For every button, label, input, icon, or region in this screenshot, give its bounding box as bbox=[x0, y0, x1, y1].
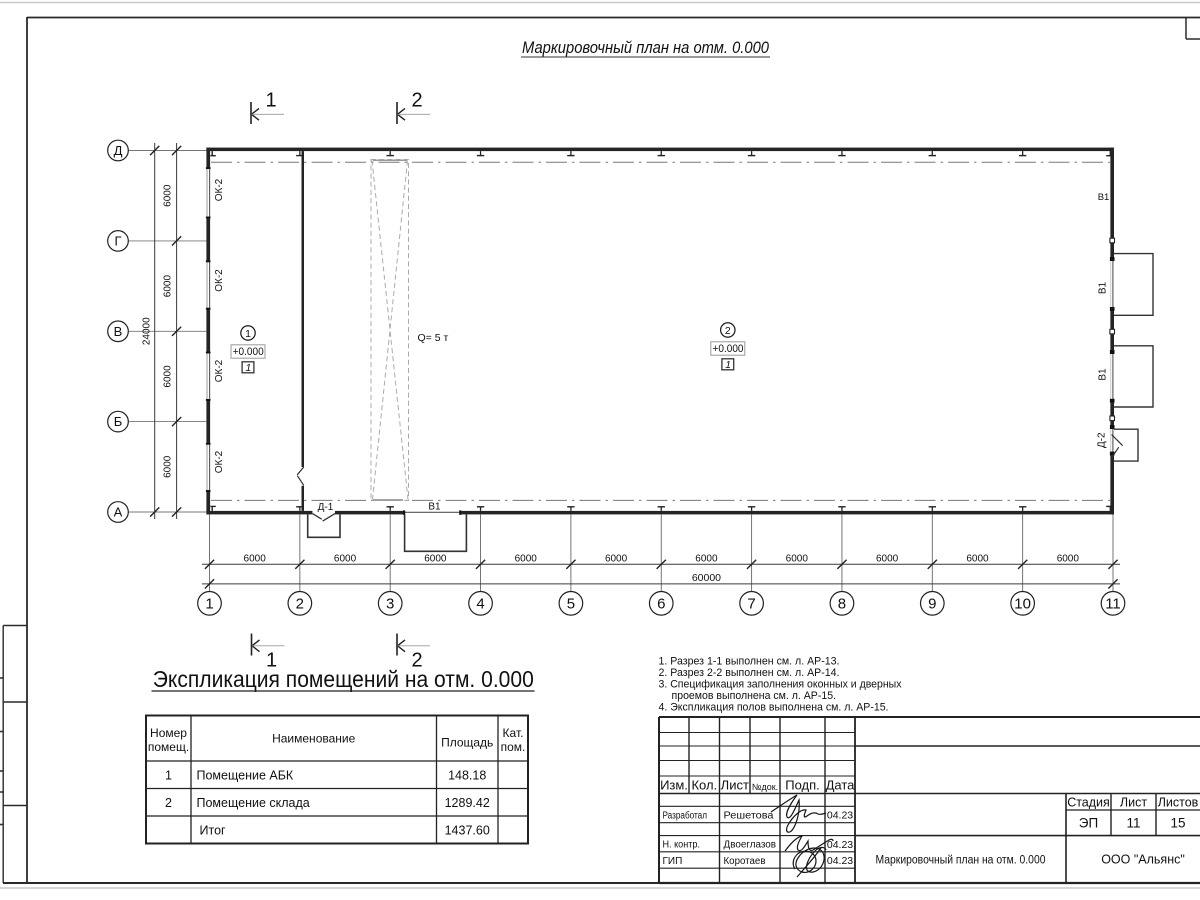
svg-text:Д: Д bbox=[114, 143, 123, 158]
svg-text:04.23: 04.23 bbox=[827, 855, 853, 867]
svg-text:2. Разрез 2-2 выполнен см. л.: 2. Разрез 2-2 выполнен см. л. АР-14. bbox=[659, 667, 840, 679]
svg-text:1: 1 bbox=[205, 596, 213, 613]
svg-text:3. Спецификация заполнения око: 3. Спецификация заполнения оконных и две… bbox=[659, 679, 903, 691]
svg-text:15: 15 bbox=[1170, 816, 1185, 831]
svg-text:6000: 6000 bbox=[244, 553, 267, 564]
svg-text:ОК-2: ОК-2 bbox=[214, 450, 225, 473]
svg-text:ОК-2: ОК-2 bbox=[214, 178, 225, 201]
svg-text:+0.000: +0.000 bbox=[713, 343, 744, 355]
svg-text:1. Разрез 1-1 выполнен см. л.: 1. Разрез 1-1 выполнен см. л. АР-13. bbox=[659, 655, 840, 667]
svg-text:Г: Г bbox=[114, 234, 121, 249]
svg-text:В1: В1 bbox=[1098, 192, 1110, 203]
svg-text:проемов выполнена см. л. АР-15: проемов выполнена см. л. АР-15. bbox=[672, 690, 837, 702]
svg-text:6000: 6000 bbox=[605, 553, 628, 564]
svg-text:ОК-2: ОК-2 bbox=[214, 359, 225, 382]
svg-text:3: 3 bbox=[386, 596, 394, 613]
svg-text:8: 8 bbox=[838, 596, 846, 613]
svg-text:Стадия: Стадия bbox=[1067, 795, 1110, 809]
svg-text:6000: 6000 bbox=[163, 275, 174, 298]
svg-text:6000: 6000 bbox=[163, 184, 174, 207]
svg-text:2: 2 bbox=[411, 90, 422, 112]
svg-text:В1: В1 bbox=[428, 502, 441, 513]
svg-text:Д-2: Д-2 bbox=[1097, 432, 1108, 448]
svg-text:В1: В1 bbox=[1098, 281, 1109, 294]
svg-text:6000: 6000 bbox=[515, 553, 538, 564]
svg-text:№док.: №док. bbox=[752, 782, 778, 792]
svg-text:1: 1 bbox=[165, 769, 172, 783]
svg-text:6000: 6000 bbox=[695, 553, 718, 564]
svg-text:ООО "Альянс": ООО "Альянс" bbox=[1101, 853, 1185, 867]
svg-text:2: 2 bbox=[296, 596, 304, 613]
svg-text:04.23: 04.23 bbox=[827, 810, 853, 822]
svg-text:1289.42: 1289.42 bbox=[445, 796, 490, 810]
svg-text:1: 1 bbox=[245, 328, 251, 340]
svg-text:Коротаев: Коротаев bbox=[724, 856, 766, 867]
svg-text:Площадь: Площадь bbox=[441, 736, 493, 750]
svg-text:Подп.: Подп. bbox=[785, 777, 820, 792]
svg-text:А: А bbox=[114, 505, 123, 520]
svg-text:Q= 5 т: Q= 5 т bbox=[418, 332, 449, 344]
svg-text:Наименование: Наименование bbox=[272, 732, 356, 746]
svg-text:Листов: Листов bbox=[1158, 795, 1199, 809]
svg-text:ГИП: ГИП bbox=[663, 856, 683, 867]
svg-text:6000: 6000 bbox=[163, 365, 174, 388]
svg-text:6000: 6000 bbox=[1057, 553, 1080, 564]
svg-text:6000: 6000 bbox=[424, 553, 447, 564]
svg-text:Лист: Лист bbox=[1120, 795, 1147, 809]
svg-text:Кол.: Кол. bbox=[691, 777, 717, 792]
svg-text:1: 1 bbox=[725, 360, 731, 371]
svg-text:Дата: Дата bbox=[826, 777, 856, 792]
svg-text:6000: 6000 bbox=[334, 553, 357, 564]
svg-text:9: 9 bbox=[928, 596, 936, 613]
svg-text:1: 1 bbox=[245, 363, 251, 374]
svg-text:Маркировочный план на отм. 0.0: Маркировочный план на отм. 0.000 bbox=[522, 39, 770, 57]
svg-text:24000: 24000 bbox=[142, 317, 153, 345]
svg-text:6000: 6000 bbox=[966, 553, 989, 564]
svg-text:11: 11 bbox=[1126, 816, 1140, 831]
svg-text:6000: 6000 bbox=[786, 553, 809, 564]
svg-text:ЭП: ЭП bbox=[1079, 816, 1098, 831]
svg-text:Помещение склада: Помещение склада bbox=[197, 796, 310, 810]
svg-text:Кат.: Кат. bbox=[503, 726, 524, 740]
svg-text:Двоеглазов: Двоеглазов bbox=[724, 840, 777, 851]
svg-text:2: 2 bbox=[725, 325, 731, 337]
svg-text:60000: 60000 bbox=[692, 572, 721, 584]
svg-text:6000: 6000 bbox=[876, 553, 899, 564]
svg-text:Итог: Итог bbox=[200, 823, 227, 837]
svg-text:4. Экспликация полов выполнена: 4. Экспликация полов выполнена см. л. АР… bbox=[659, 702, 889, 714]
svg-text:Д-1: Д-1 bbox=[318, 502, 334, 513]
svg-text:Разработал: Разработал bbox=[663, 809, 708, 821]
svg-text:+0.000: +0.000 bbox=[233, 346, 264, 358]
svg-text:6: 6 bbox=[657, 596, 665, 613]
svg-text:помещ.: помещ. bbox=[148, 740, 189, 754]
svg-text:В1: В1 bbox=[1098, 368, 1109, 381]
svg-text:Помещение АБК: Помещение АБК bbox=[197, 769, 294, 783]
svg-text:В: В bbox=[114, 324, 123, 339]
svg-text:Б: Б bbox=[114, 414, 123, 429]
svg-text:ОК-2: ОК-2 bbox=[214, 269, 225, 292]
svg-text:2: 2 bbox=[165, 796, 172, 810]
svg-text:6000: 6000 bbox=[163, 455, 174, 478]
svg-text:Экспликация помещений на отм.: Экспликация помещений на отм. 0.000 bbox=[153, 666, 534, 692]
svg-text:11: 11 bbox=[1105, 596, 1121, 613]
svg-text:1: 1 bbox=[265, 90, 276, 112]
svg-text:10: 10 bbox=[1014, 596, 1031, 613]
svg-text:Лист: Лист bbox=[721, 777, 749, 792]
svg-text:Номер: Номер bbox=[150, 726, 187, 740]
svg-text:04.23: 04.23 bbox=[827, 839, 853, 851]
svg-text:7: 7 bbox=[747, 596, 755, 613]
svg-text:Решетова: Решетова bbox=[724, 810, 774, 821]
svg-text:Маркировочный план на отм. 0.0: Маркировочный план на отм. 0.000 bbox=[876, 854, 1046, 866]
svg-text:5: 5 bbox=[567, 596, 575, 613]
svg-text:148.18: 148.18 bbox=[448, 769, 486, 783]
svg-text:пом.: пом. bbox=[501, 740, 526, 754]
svg-text:Н. контр.: Н. контр. bbox=[663, 840, 701, 851]
svg-text:4: 4 bbox=[476, 596, 484, 613]
svg-text:1437.60: 1437.60 bbox=[445, 823, 490, 837]
svg-text:Изм.: Изм. bbox=[660, 777, 688, 792]
